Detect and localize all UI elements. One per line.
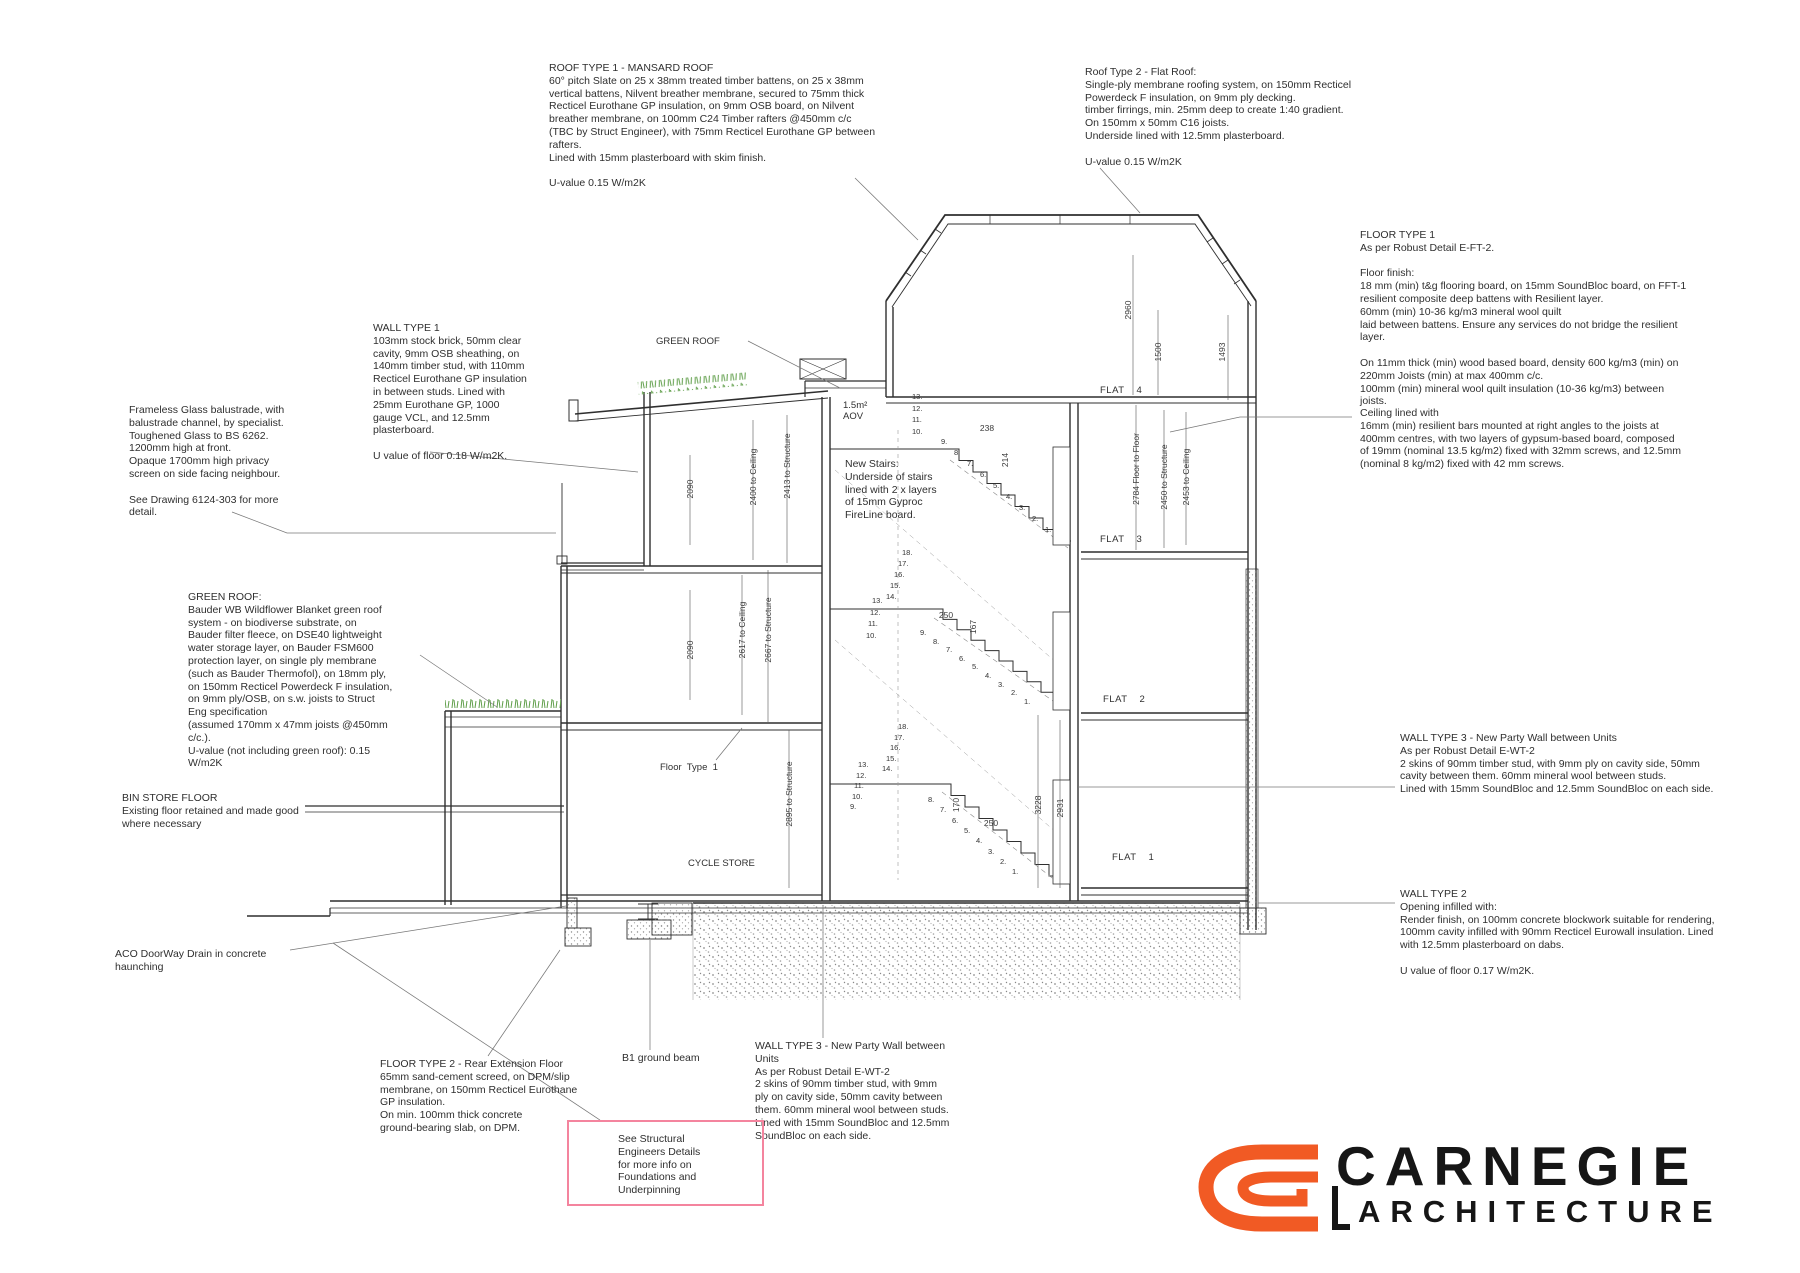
label-floor-type-1: Floor Type 1 (660, 762, 718, 773)
note-wall-type-1: WALL TYPE 1 103mm stock brick, 50mm clea… (373, 322, 527, 463)
note-roof-type-1: ROOF TYPE 1 - MANSARD ROOF 60° pitch Sla… (549, 62, 875, 190)
mansard-roof (886, 215, 1256, 307)
floors (305, 397, 1256, 895)
label-flat-1: FLAT 1 (1112, 852, 1154, 863)
dim-214: 214 (1000, 453, 1010, 467)
note-floor-type-2: FLOOR TYPE 2 - Rear Extension Floor 65mm… (380, 1058, 577, 1135)
label-aov: 1.5m² AOV (843, 400, 867, 422)
dim-2667-structure: 2667 to Structure (763, 597, 773, 662)
dim-3228: 3228 (1033, 796, 1043, 815)
dim-2931: 2931 (1055, 799, 1065, 818)
dim-2784-floor-to-floor: 2784 Floor to Floor (1131, 433, 1141, 505)
dim-250-mid: 250 (939, 610, 953, 620)
logo-wordmark: CARNEGIE (1336, 1134, 1698, 1198)
dim-2453-ceiling: 2453 to Ceiling (1181, 449, 1191, 506)
note-new-stairs: New Stairs: Underside of stairs lined wi… (845, 458, 937, 522)
note-ceiling-lining: Ceiling lined with 16mm (min) resilient … (1360, 407, 1681, 471)
note-structural-engineers: See Structural Engineers Details for mor… (618, 1133, 700, 1197)
label-flat-3: FLAT 3 (1100, 534, 1142, 545)
note-b1-ground-beam: B1 ground beam (622, 1052, 700, 1065)
dim-1493: 1493 (1217, 343, 1227, 362)
dim-167: 167 (968, 620, 978, 634)
label-green-roof: GREEN ROOF (656, 336, 720, 347)
note-bin-store: BIN STORE FLOOR Existing floor retained … (122, 792, 299, 830)
dim-2090-b: 2090 (685, 641, 695, 660)
dim-1500: 1500 (1153, 343, 1163, 362)
label-flat-2: FLAT 2 (1103, 694, 1145, 705)
dim-2960: 2960 (1123, 301, 1133, 320)
label-cycle-store: CYCLE STORE (688, 858, 755, 869)
note-floor-type-1: FLOOR TYPE 1 As per Robust Detail E-FT-2… (1360, 229, 1686, 408)
dim-2413-structure: 2413 to Structure (782, 433, 792, 498)
existing-wall-hatch (1246, 569, 1258, 908)
dim-238: 238 (980, 423, 994, 433)
terrace-parapet (557, 359, 886, 570)
note-wall-type-2-right: WALL TYPE 2 Opening infilled with: Rende… (1400, 888, 1715, 978)
dim-2400-ceiling: 2400 to Ceiling (748, 449, 758, 506)
note-roof-type-2: Roof Type 2 - Flat Roof: Single-ply memb… (1085, 66, 1351, 168)
note-balustrade: Frameless Glass balustrade, with balustr… (129, 404, 284, 519)
dim-250-bottom: 250 (984, 818, 998, 828)
note-green-roof: GREEN ROOF: Bauder WB Wildflower Blanket… (188, 591, 392, 770)
note-wall-type-3-right: WALL TYPE 3 - New Party Wall between Uni… (1400, 732, 1713, 796)
dimension-lines (690, 255, 1228, 888)
dim-170: 170 (951, 798, 961, 812)
note-wall-type-3-bottom: WALL TYPE 3 - New Party Wall between Uni… (755, 1040, 949, 1142)
dim-2090-a: 2090 (685, 480, 695, 499)
dim-2450-structure: 2450 to Structure (1159, 444, 1169, 509)
label-flat-4: FLAT 4 (1100, 385, 1142, 396)
logo-tagline: ARCHITECTURE (1358, 1194, 1723, 1230)
dim-2617-ceiling: 2617 to Ceiling (737, 602, 747, 659)
dim-2895-structure: 2895 to Structure (784, 761, 794, 826)
note-aco-drain: ACO DoorWay Drain in concrete haunching (115, 948, 266, 974)
drawing-sheet: ROOF TYPE 1 - MANSARD ROOF 60° pitch Sla… (0, 0, 1800, 1273)
